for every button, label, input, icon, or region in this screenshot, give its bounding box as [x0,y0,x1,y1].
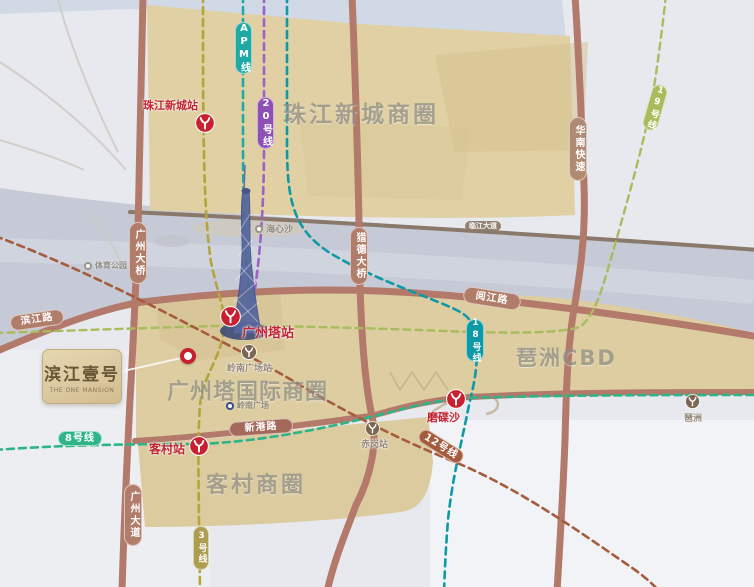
poi-label-sports-park: 体育公园 [95,260,127,271]
station-label-zhujiangxincheng: 珠江新城站 [143,97,198,113]
road-label-guangzhou-bridge: 广州大桥 [129,222,147,284]
metro-line-label-3: 3号线 [193,526,209,570]
ground-southeast [430,420,754,587]
district-label-kecun: 客村商圈 [206,467,306,499]
road-label-liede-bridge: 猎德大桥 [350,227,368,285]
metro-station-icon-kecun [189,436,209,460]
poi-label-lingnan-plaza: 岭南广场 [237,400,269,411]
station-label-chigang: 赤岗站 [361,437,388,450]
station-label-lingnanguangchang: 岭南广场站 [227,361,272,374]
map-graphic [0,0,754,587]
station-label-guangzhouta: 广州塔站 [242,322,294,341]
metro-line-label-8: 8号线 [58,431,102,446]
district-label-zhujiang: 珠江新城商圈 [283,95,439,129]
poi-dot-icon [255,225,263,233]
metro-line-label-18: 18号线 [466,319,484,362]
project-name-en: THE ONE MANSION [50,387,115,394]
poi-sports-park: 体育公园 [84,260,127,271]
metro-station-icon-guangzhouta [220,306,241,331]
station-label-pazhou: 琶洲 [684,411,702,424]
poi-lingnan-plaza: 岭南广场 [226,400,269,411]
metro-station-icon-zhujiangxincheng [195,113,215,137]
poi-dot-icon [226,402,234,410]
project-name: 滨江壹号 [44,360,120,385]
metro-line-label-20: 20号线 [257,97,274,149]
metro-line-label-apm: APM线 [235,22,252,74]
poi-label-haixinsha: 海心沙 [266,222,293,235]
road-label-guangzhou-avenue: 广州大道 [124,484,142,546]
project-location-marker [180,348,196,364]
poi-haixinsha: 海心沙 [255,222,293,235]
location-map: 珠江新城商圈 琶洲CBD 广州塔国际商圈 客村商圈 APM线 20号线 19号线… [0,0,754,587]
road-label-linjiang-avenue: 临江大道 [465,221,501,231]
poi-dot-icon [84,262,92,270]
road-label-huanan-expressway: 华南快速 [569,117,587,181]
district-label-pazhou-cbd: 琶洲CBD [516,342,617,372]
station-label-modiesha: 磨碟沙 [427,409,460,425]
project-card: 滨江壹号 THE ONE MANSION [42,349,122,404]
station-label-kecun: 客村站 [149,440,185,457]
